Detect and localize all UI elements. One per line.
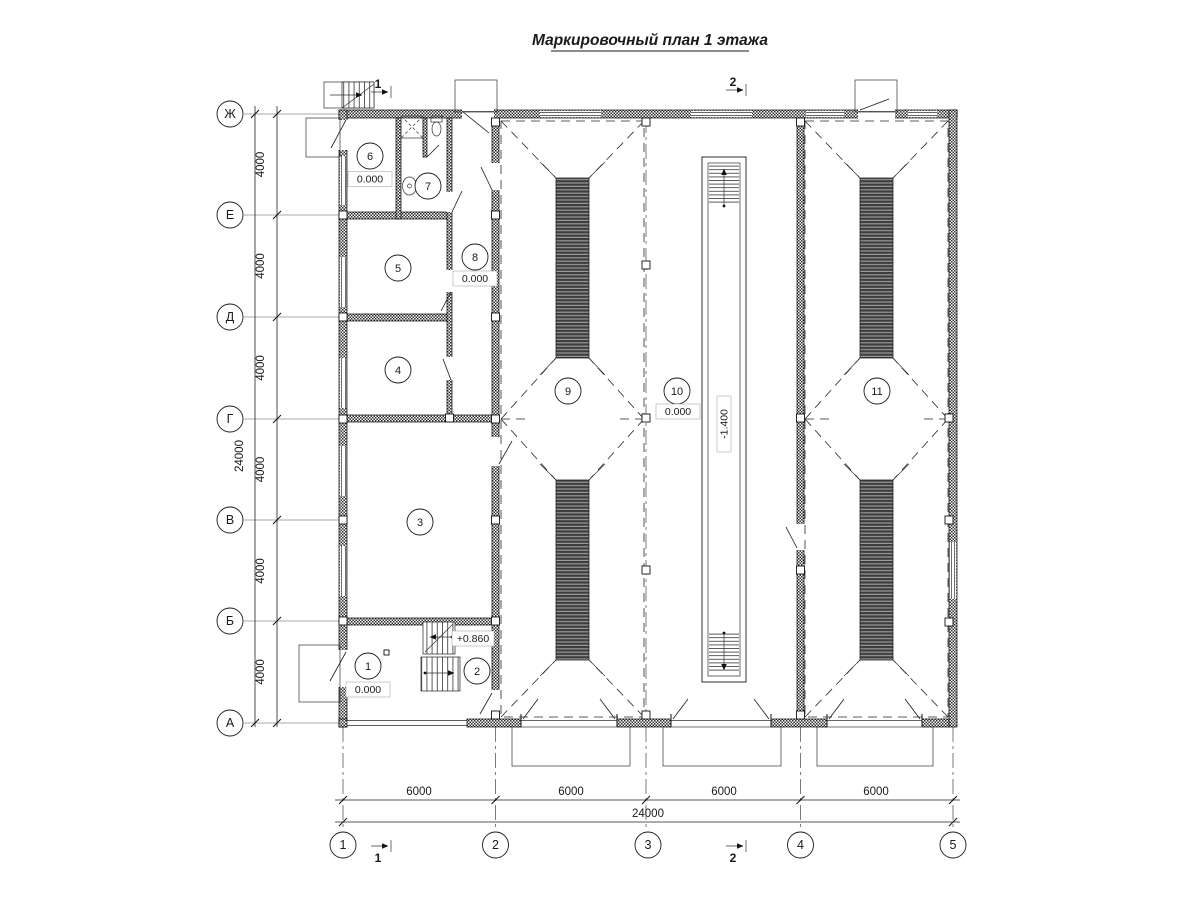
room-label-9: 9 [565, 386, 571, 398]
elevation-stair-landing: +0.860 [457, 633, 490, 645]
dim-left-2: 4000 [255, 355, 267, 381]
room-label-4: 4 [395, 365, 401, 377]
drawing-title: Маркировочный план 1 этажа [532, 32, 768, 51]
dim-bottom-total: 24000 [632, 808, 664, 820]
axis-row-6: А [226, 716, 235, 730]
page-title: Маркировочный план 1 этажа [532, 32, 768, 49]
axis-row-0: Ж [224, 107, 236, 121]
paper-background [0, 0, 1200, 900]
floor-plan-drawing: -1.400 [0, 0, 1200, 900]
elevation-room6: 0.000 [357, 174, 383, 186]
dim-bottom-2: 6000 [711, 786, 737, 798]
room-label-7: 7 [425, 181, 431, 193]
axis-row-4: В [226, 513, 234, 527]
dim-bottom-1: 6000 [558, 786, 584, 798]
dim-bottom-3: 6000 [863, 786, 889, 798]
axis-col-0: 1 [340, 838, 347, 852]
elevation-room10: 0.000 [665, 406, 691, 418]
room-label-8: 8 [472, 252, 478, 264]
room-label-6: 6 [367, 151, 373, 163]
dim-left-4: 4000 [255, 558, 267, 584]
section-2-bottom-label: 2 [730, 851, 737, 865]
axis-col-3: 4 [797, 838, 804, 852]
dim-left-total: 24000 [234, 440, 246, 472]
axis-row-1: Е [226, 208, 234, 222]
axis-col-1: 2 [492, 838, 499, 852]
section-1-top-label: 1 [375, 77, 382, 91]
room-label-10: 10 [671, 386, 683, 398]
axis-row-2: Д [226, 310, 235, 324]
dim-bottom-0: 6000 [406, 786, 432, 798]
axis-row-5: Б [226, 614, 234, 628]
elevation-room1: 0.000 [355, 684, 381, 696]
elevation-room8: 0.000 [462, 273, 488, 285]
dim-left-0: 4000 [255, 152, 267, 178]
room-label-3: 3 [417, 517, 423, 529]
dim-left-5: 4000 [255, 659, 267, 685]
dim-left-3: 4000 [255, 457, 267, 483]
axis-row-3: Г [227, 412, 234, 426]
ramp-elevation-label: -1.400 [719, 409, 731, 439]
axis-col-4: 5 [950, 838, 957, 852]
dim-left-1: 4000 [255, 253, 267, 279]
room-label-11: 11 [871, 386, 882, 398]
room-label-5: 5 [395, 263, 401, 275]
section-1-bottom-label: 1 [375, 851, 382, 865]
room-label-1: 1 [365, 661, 371, 673]
axis-col-2: 3 [645, 838, 652, 852]
section-2-top-label: 2 [730, 75, 737, 89]
room-label-2: 2 [474, 666, 480, 678]
